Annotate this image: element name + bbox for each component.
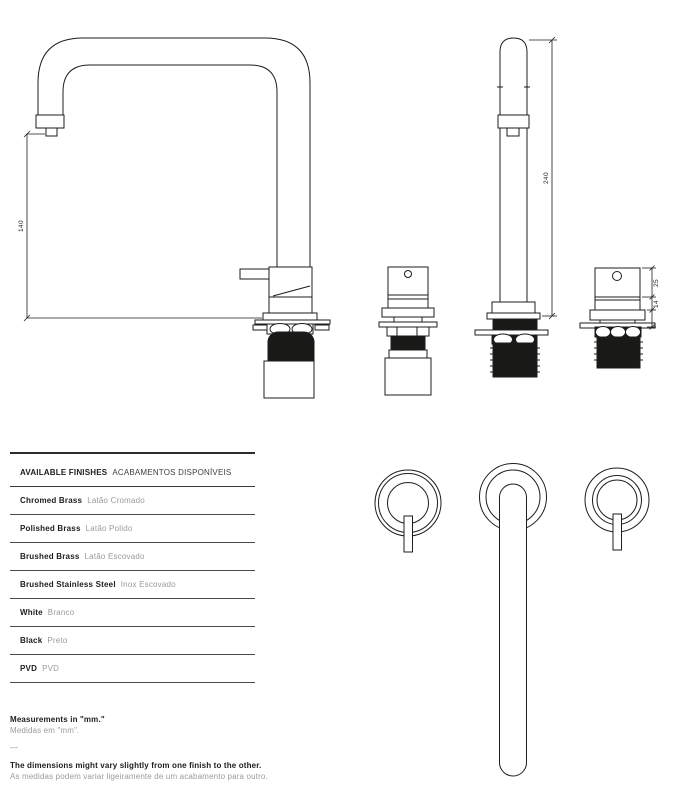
spout-top-view xyxy=(480,464,547,777)
dimension-spout-height: 140 xyxy=(18,131,262,321)
finish-name-en: Chromed Brass xyxy=(20,496,82,505)
finishes-table: AVAILABLE FINISHES ACABAMENTOS DISPONÍVE… xyxy=(10,452,255,683)
left-handle-top-view xyxy=(375,470,441,552)
finish-row-chromed-brass: Chromed Brass Latão Cromado xyxy=(10,487,255,515)
finish-row-polished-brass: Polished Brass Latão Polido xyxy=(10,515,255,543)
finish-name-en: Black xyxy=(20,636,42,645)
finish-row-black: Black Preto xyxy=(10,627,255,655)
handle-body-height-label: 25 xyxy=(653,279,660,287)
finish-row-brushed-brass: Brushed Brass Latão Escovado xyxy=(10,543,255,571)
faucet-side-view xyxy=(36,38,330,398)
notes-separator: — xyxy=(10,743,340,753)
finish-name-pt: Latão Cromado xyxy=(87,496,145,505)
right-handle-top-view xyxy=(585,468,649,550)
measurements-note-en: Measurements in "mm." xyxy=(10,714,340,725)
finish-name-en: PVD xyxy=(20,664,37,673)
finish-row-brushed-stainless-steel: Brushed Stainless Steel Inox Escovado xyxy=(10,571,255,599)
tolerance-note-pt: As medidas podem variar ligeiramente de … xyxy=(10,771,340,782)
tolerance-note-en: The dimensions might vary slightly from … xyxy=(10,760,340,771)
spec-sheet-page: 140 xyxy=(0,0,678,800)
handle-front-view xyxy=(580,268,655,368)
finish-name-pt: Inox Escovado xyxy=(121,580,176,589)
faucet-front-view xyxy=(475,38,548,377)
finish-name-pt: PVD xyxy=(42,664,59,673)
footer-notes: Measurements in "mm." Medidas em "mm". —… xyxy=(10,714,340,782)
finish-row-white: White Branco xyxy=(10,599,255,627)
finish-name-en: White xyxy=(20,608,43,617)
finish-name-en: Brushed Stainless Steel xyxy=(20,580,116,589)
finish-name-pt: Latão Escovado xyxy=(85,552,145,561)
finish-name-pt: Preto xyxy=(47,636,67,645)
finishes-title-pt: ACABAMENTOS DISPONÍVEIS xyxy=(112,468,231,477)
top-view-drawing xyxy=(375,464,649,777)
finish-name-pt: Branco xyxy=(48,608,75,617)
measurements-note-pt: Medidas em "mm". xyxy=(10,725,340,736)
handle-base-height-label: 14 xyxy=(653,300,660,308)
valve-side-view xyxy=(379,267,437,395)
finish-name-en: Brushed Brass xyxy=(20,552,80,561)
dimension-total-height: 240 xyxy=(529,37,557,319)
finish-name-pt: Latão Polido xyxy=(86,524,133,533)
finish-name-en: Polished Brass xyxy=(20,524,81,533)
finishes-table-header: AVAILABLE FINISHES ACABAMENTOS DISPONÍVE… xyxy=(10,454,255,487)
spout-height-label: 140 xyxy=(18,220,25,232)
finish-row-pvd: PVD PVD xyxy=(10,655,255,683)
total-height-label: 240 xyxy=(543,172,550,184)
finishes-title-en: AVAILABLE FINISHES xyxy=(20,468,107,477)
